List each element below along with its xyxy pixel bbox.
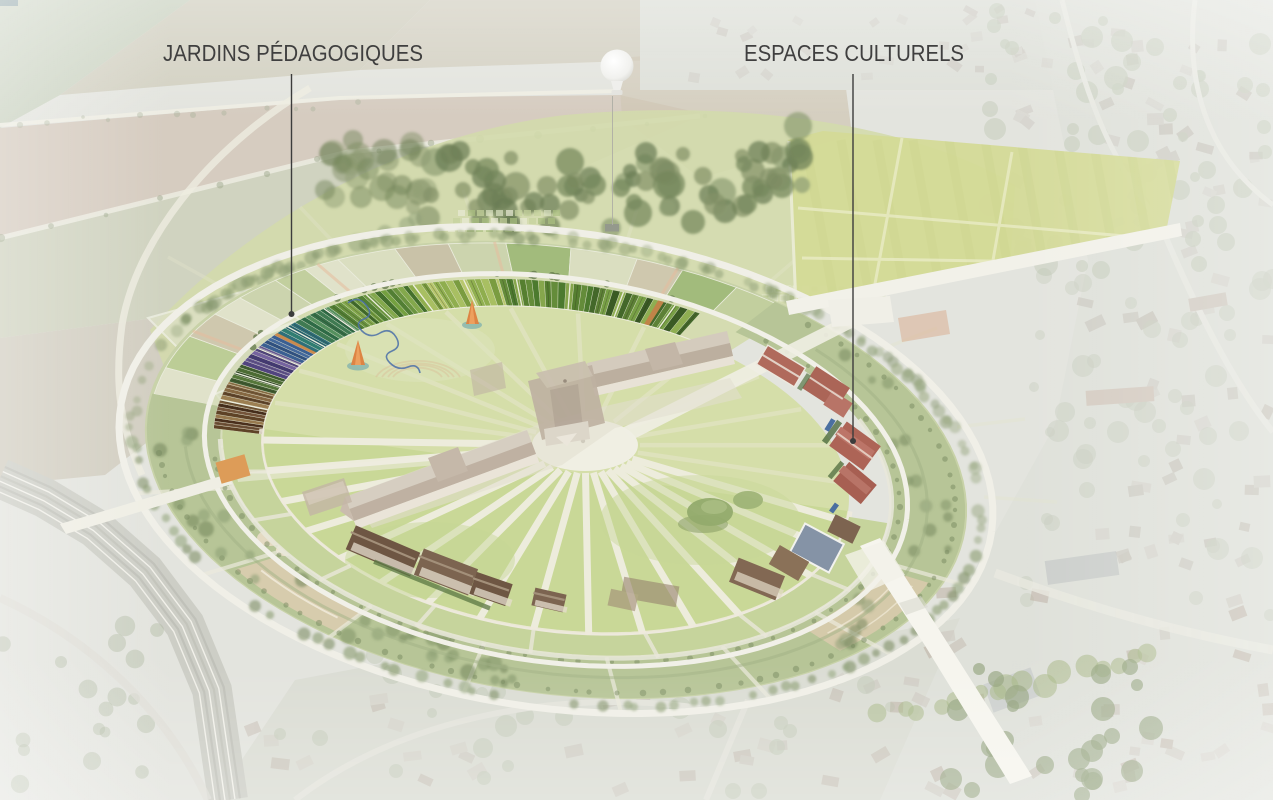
svg-text:ESPACES CULTURELS: ESPACES CULTURELS xyxy=(744,40,964,66)
svg-text:JARDINS PÉDAGOGIQUES: JARDINS PÉDAGOGIQUES xyxy=(163,40,423,66)
